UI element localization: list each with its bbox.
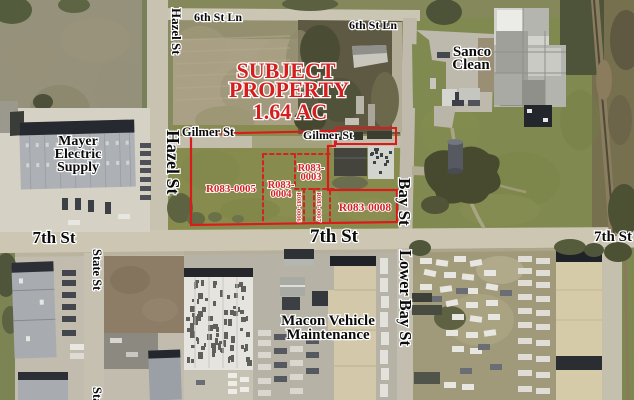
svg-text:6th St Ln: 6th St Ln (194, 10, 242, 24)
svg-text:Sta: Sta (90, 387, 104, 400)
svg-text:Clean: Clean (452, 57, 490, 73)
svg-text:R083-0007: R083-0007 (315, 192, 322, 222)
svg-text:Maintenance: Maintenance (286, 327, 370, 343)
svg-text:7th St: 7th St (33, 228, 76, 247)
svg-text:Lower Bay St: Lower Bay St (396, 250, 415, 346)
svg-text:7th St: 7th St (310, 226, 359, 247)
svg-text:1.64 AC: 1.64 AC (253, 99, 328, 124)
svg-text:Supply: Supply (57, 160, 99, 175)
svg-text:0004: 0004 (271, 189, 293, 200)
svg-text:0003: 0003 (301, 172, 322, 183)
svg-text:R083-0008: R083-0008 (339, 202, 392, 214)
svg-text:R083-0005: R083-0005 (206, 183, 257, 195)
svg-text:Gilmer St: Gilmer St (303, 128, 353, 142)
svg-text:R083-0006: R083-0006 (295, 192, 302, 222)
svg-text:6th St Ln: 6th St Ln (349, 18, 397, 32)
svg-text:7th St: 7th St (594, 229, 632, 245)
svg-text:Hazel St: Hazel St (163, 130, 183, 195)
svg-text:Bay St: Bay St (395, 178, 414, 226)
svg-text:Hazel St: Hazel St (169, 8, 184, 55)
svg-text:State St: State St (90, 249, 104, 291)
svg-text:Gilmer St: Gilmer St (182, 125, 235, 139)
